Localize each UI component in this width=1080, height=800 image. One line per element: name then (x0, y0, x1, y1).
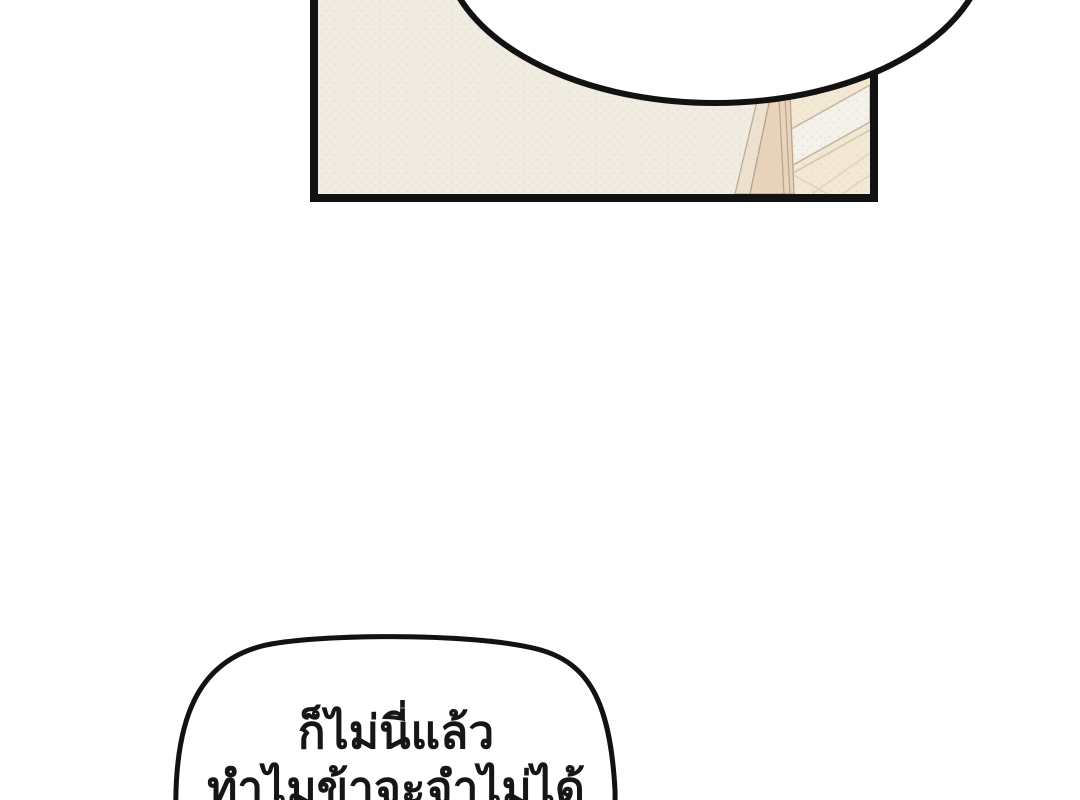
speech-text-bottom: ก็ไม่นี่แล้ว ทำไมข้าจะจำไม่ได้ (170, 704, 622, 800)
speech-line-1: ก็ไม่นี่แล้ว (170, 704, 622, 760)
comic-page: ก็ไม่นี่แล้ว ทำไมข้าจะจำไม่ได้ (0, 0, 1080, 800)
comic-artwork (0, 0, 1080, 800)
speech-line-2: ทำไมข้าจะจำไม่ได้ (170, 760, 622, 800)
